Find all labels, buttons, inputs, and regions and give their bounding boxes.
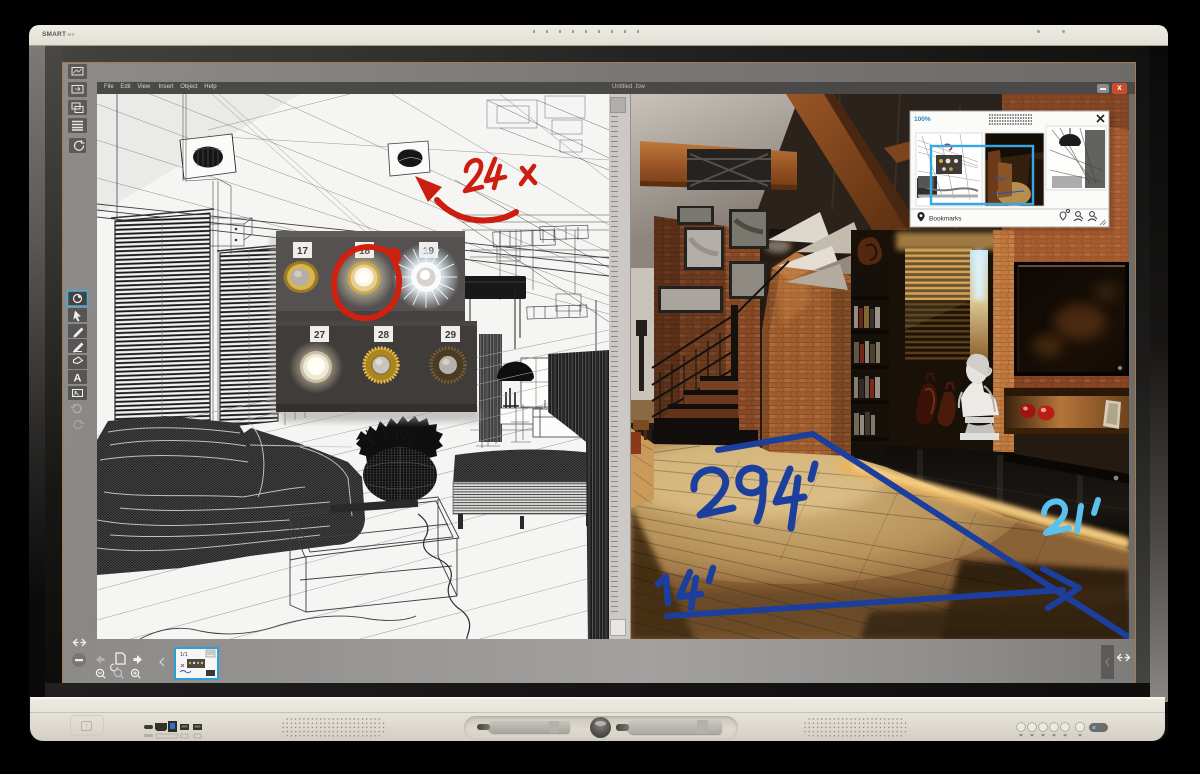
svg-text:29: 29 (445, 330, 457, 341)
svg-text:A: A (74, 373, 82, 385)
svg-text:1/1: 1/1 (180, 652, 188, 658)
svg-text:17: 17 (297, 246, 309, 257)
svg-text:100%: 100% (914, 116, 931, 123)
svg-text:27: 27 (314, 330, 326, 341)
svg-text:Bookmarks: Bookmarks (929, 216, 962, 223)
svg-text:28: 28 (378, 330, 390, 341)
